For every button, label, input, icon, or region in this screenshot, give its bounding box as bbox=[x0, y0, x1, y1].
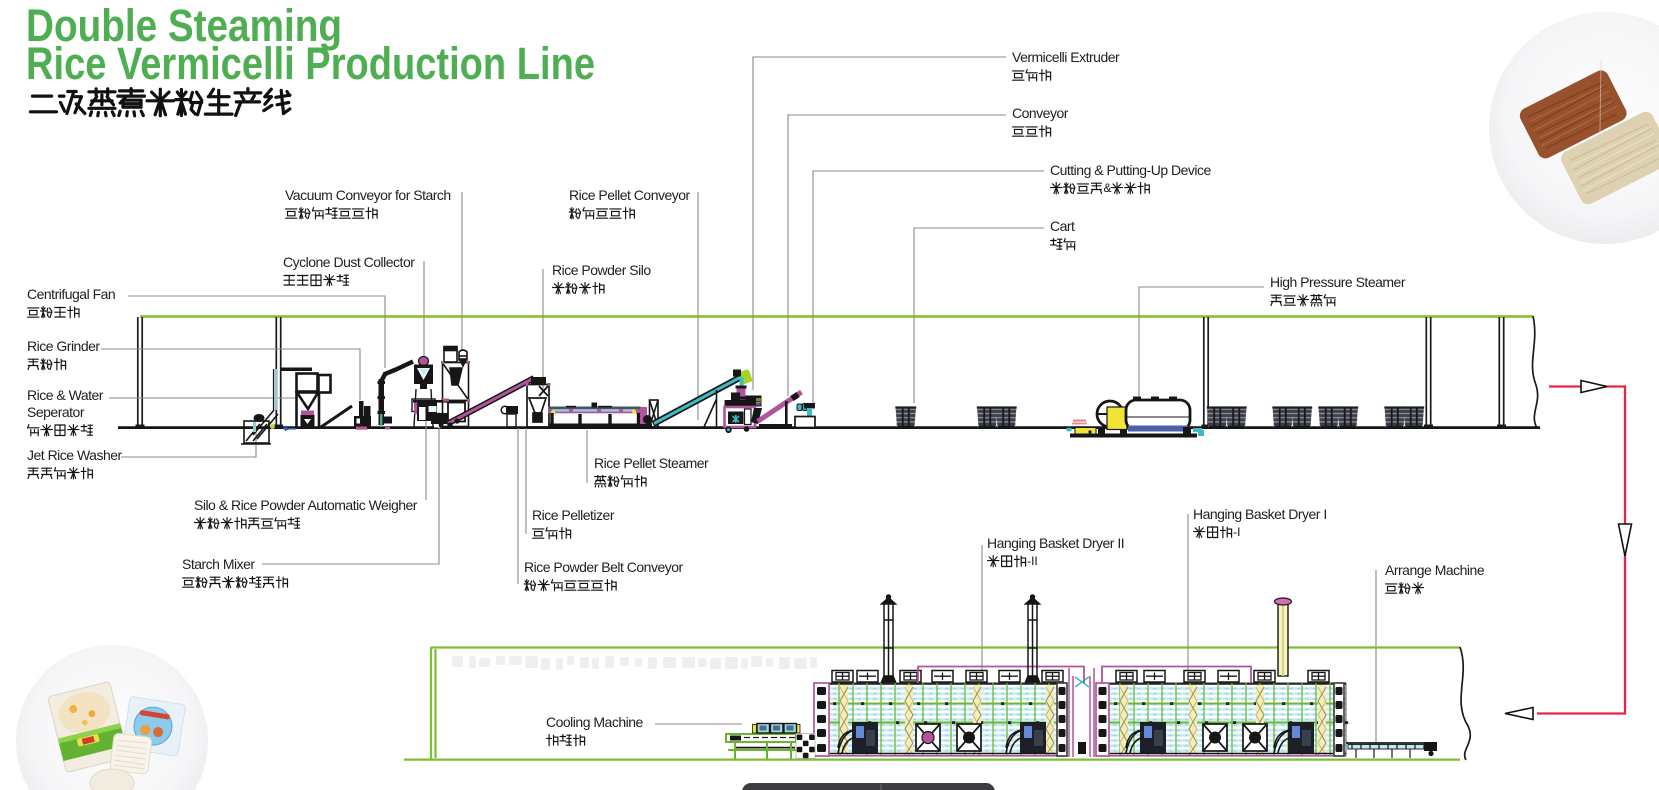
svg-text:Rice Powder Belt Conveyor: Rice Powder Belt Conveyor bbox=[524, 559, 684, 575]
svg-text:Rice Pelletizer: Rice Pelletizer bbox=[532, 507, 615, 523]
svg-text:Silo & Rice Powder Automatic W: Silo & Rice Powder Automatic Weigher bbox=[194, 497, 418, 513]
svg-text:Seperator: Seperator bbox=[27, 404, 85, 420]
svg-text:Cooling Machine: Cooling Machine bbox=[546, 714, 643, 730]
svg-text:High Pressure Steamer: High Pressure Steamer bbox=[1270, 274, 1406, 290]
svg-text:Rice & Water: Rice & Water bbox=[27, 387, 104, 403]
svg-text:Conveyor: Conveyor bbox=[1012, 105, 1069, 121]
svg-text:Rice Vermicelli Production Lin: Rice Vermicelli Production Line bbox=[26, 38, 595, 89]
svg-text:Vermicelli Extruder: Vermicelli Extruder bbox=[1012, 49, 1120, 65]
svg-text:Cyclone Dust Collector: Cyclone Dust Collector bbox=[283, 254, 415, 270]
svg-text:Jet Rice Washer: Jet Rice Washer bbox=[27, 447, 123, 463]
svg-text:Rice Pellet Conveyor: Rice Pellet Conveyor bbox=[569, 187, 691, 203]
svg-text:Arrange Machine: Arrange Machine bbox=[1385, 562, 1485, 578]
svg-text:-I: -I bbox=[1233, 525, 1240, 539]
svg-text:Rice Powder Silo: Rice Powder Silo bbox=[552, 262, 651, 278]
svg-text:Rice Grinder: Rice Grinder bbox=[27, 338, 100, 354]
svg-text:Cart: Cart bbox=[1050, 218, 1075, 234]
svg-text:Centrifugal Fan: Centrifugal Fan bbox=[27, 286, 115, 302]
svg-text:Rice Pellet Steamer: Rice Pellet Steamer bbox=[594, 455, 709, 471]
svg-text:-II: -II bbox=[1027, 554, 1038, 568]
svg-text:Starch Mixer: Starch Mixer bbox=[182, 556, 255, 572]
svg-text:Hanging Basket Dryer I: Hanging Basket Dryer I bbox=[1193, 506, 1327, 522]
svg-text:&: & bbox=[1104, 181, 1112, 195]
svg-text:Vacuum Conveyor for Starch: Vacuum Conveyor for Starch bbox=[285, 187, 451, 203]
svg-text:Hanging Basket Dryer II: Hanging Basket Dryer II bbox=[987, 535, 1124, 551]
svg-text:Cutting & Putting-Up Device: Cutting & Putting-Up Device bbox=[1050, 162, 1212, 178]
